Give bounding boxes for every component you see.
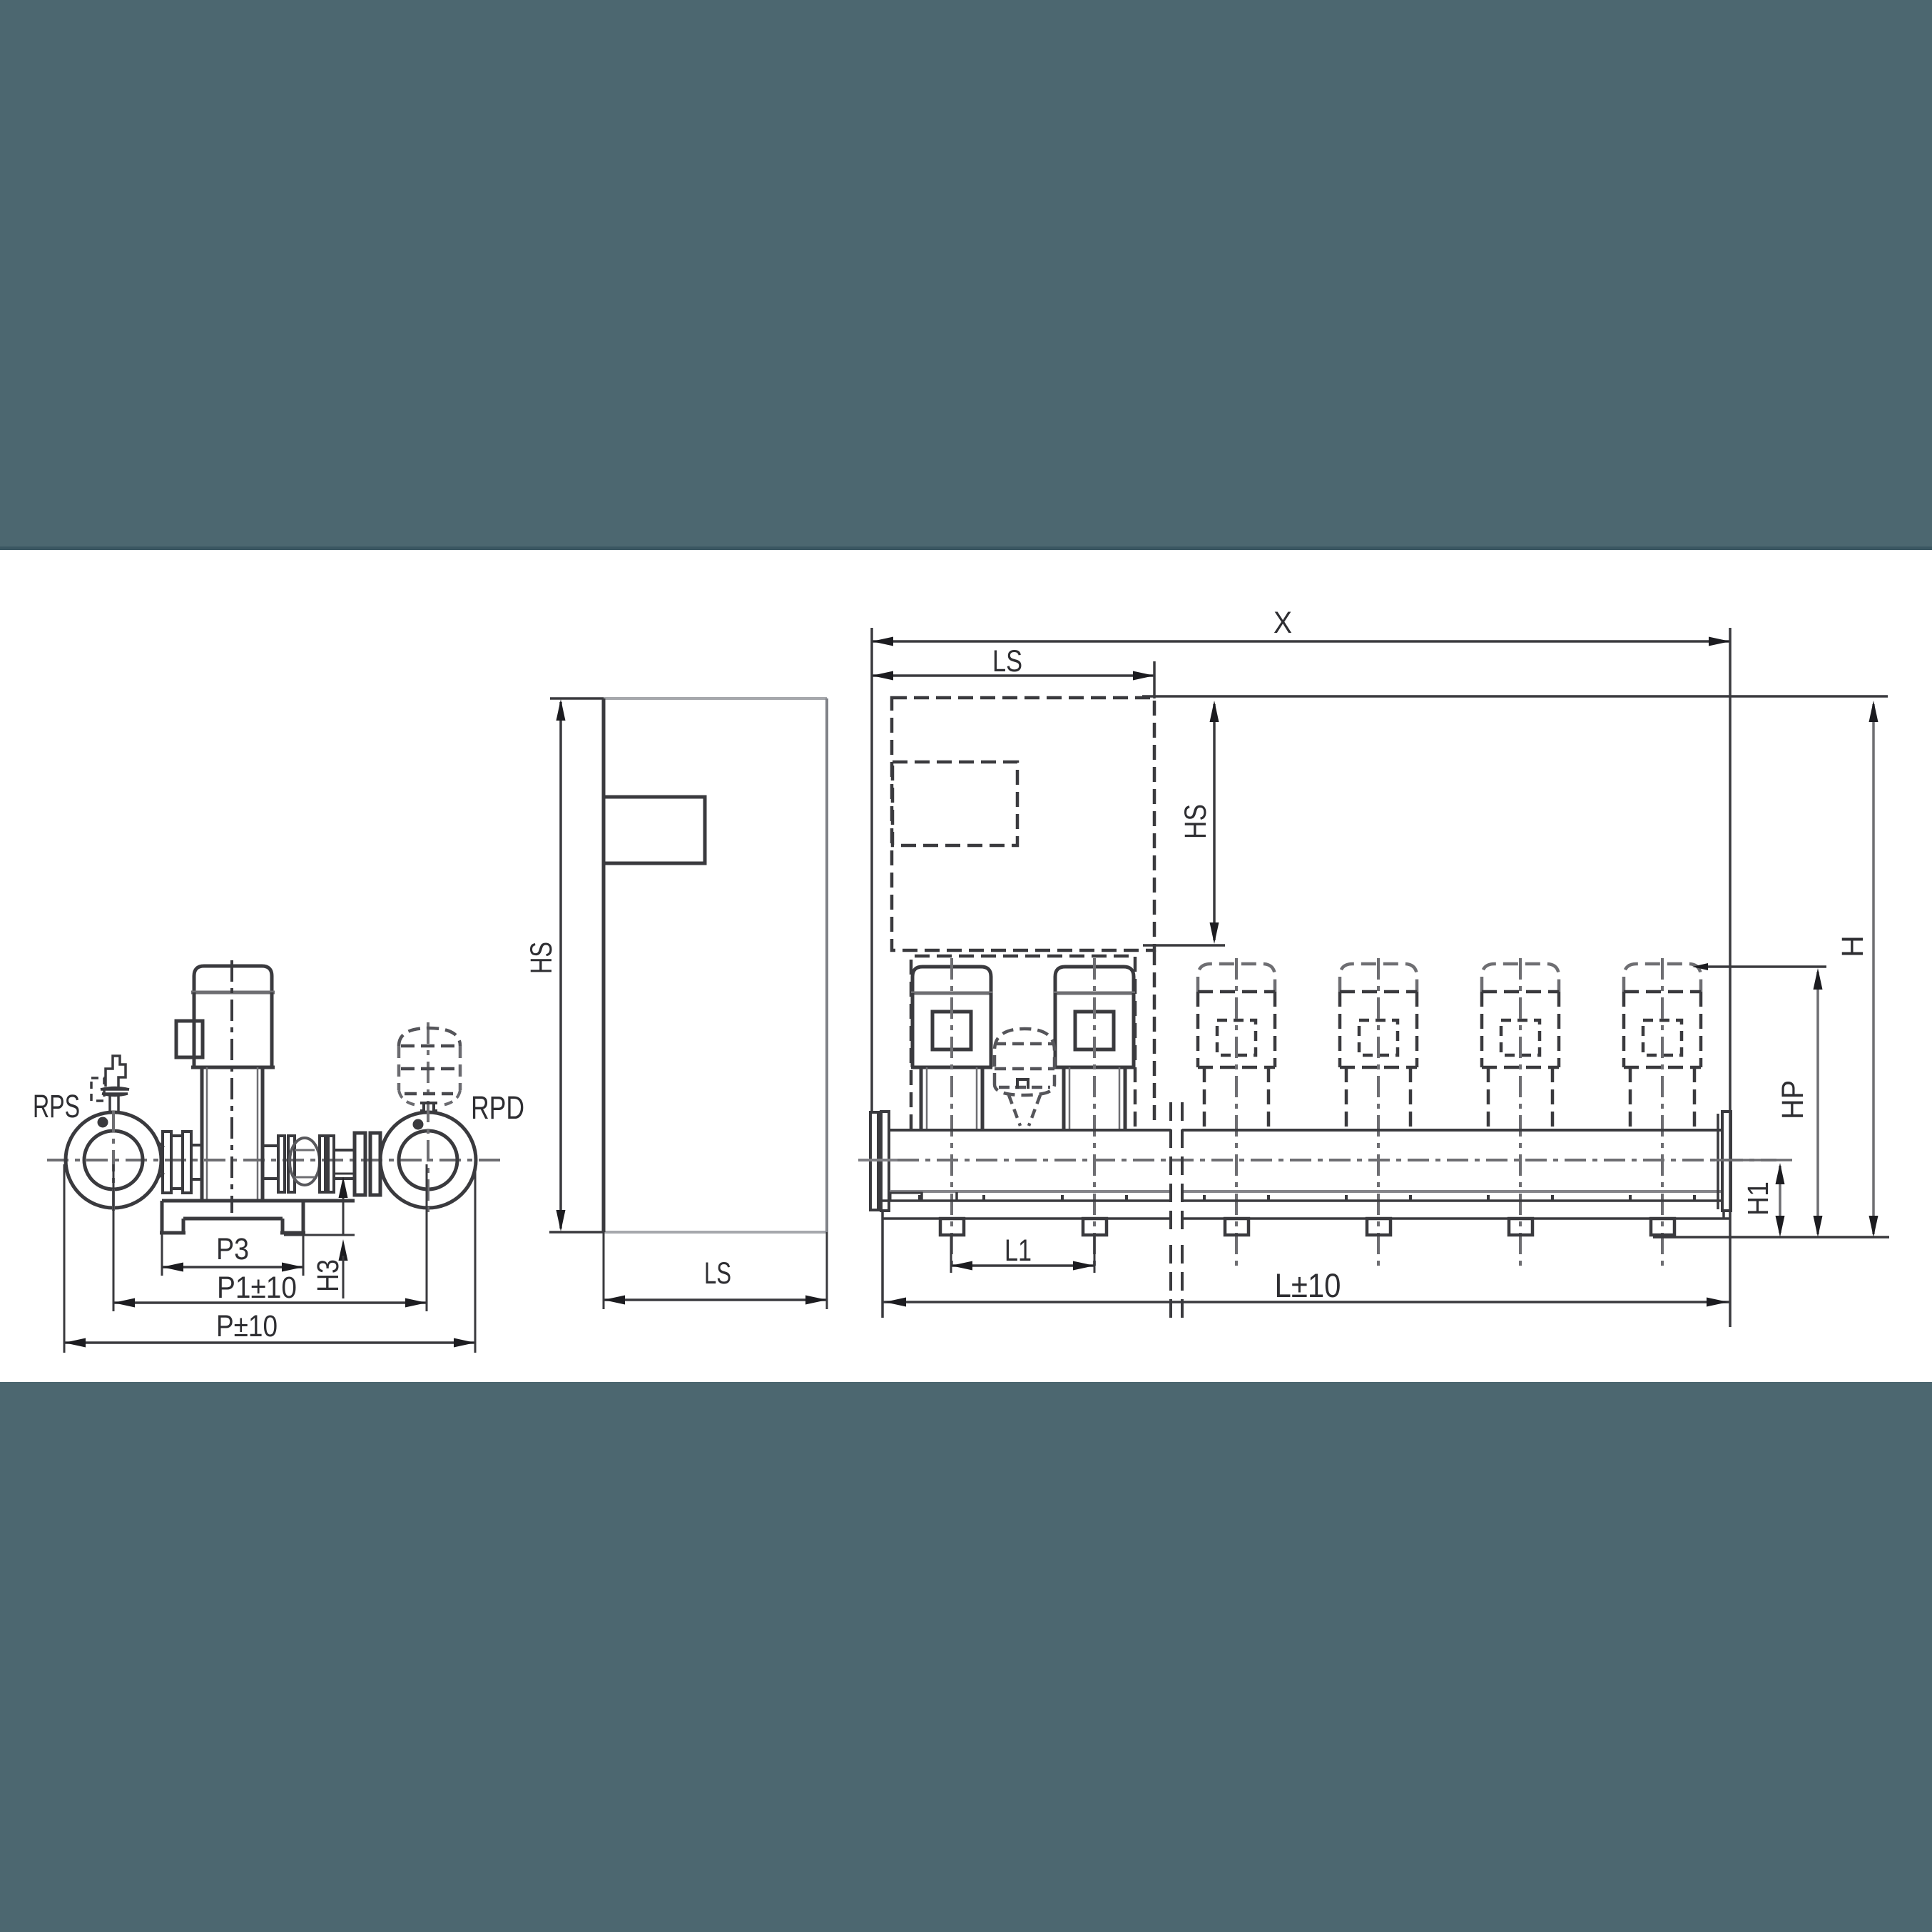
svg-text:L1: L1 <box>1005 1234 1032 1268</box>
svg-text:X: X <box>1273 606 1292 640</box>
svg-text:HS: HS <box>524 942 559 974</box>
svg-text:H3: H3 <box>311 1259 345 1292</box>
svg-text:RPD: RPD <box>471 1089 524 1126</box>
svg-text:LS: LS <box>704 1256 731 1291</box>
svg-text:RPS: RPS <box>33 1088 80 1124</box>
svg-text:L±10: L±10 <box>1275 1266 1341 1304</box>
svg-text:P1±10: P1±10 <box>217 1271 297 1305</box>
svg-text:HS: HS <box>1179 804 1213 839</box>
svg-text:H1: H1 <box>1742 1181 1774 1216</box>
svg-text:LS: LS <box>992 644 1022 678</box>
svg-text:P±10: P±10 <box>216 1309 278 1343</box>
svg-text:P3: P3 <box>216 1232 249 1266</box>
svg-text:H: H <box>1836 935 1870 957</box>
svg-text:HP: HP <box>1776 1080 1810 1119</box>
